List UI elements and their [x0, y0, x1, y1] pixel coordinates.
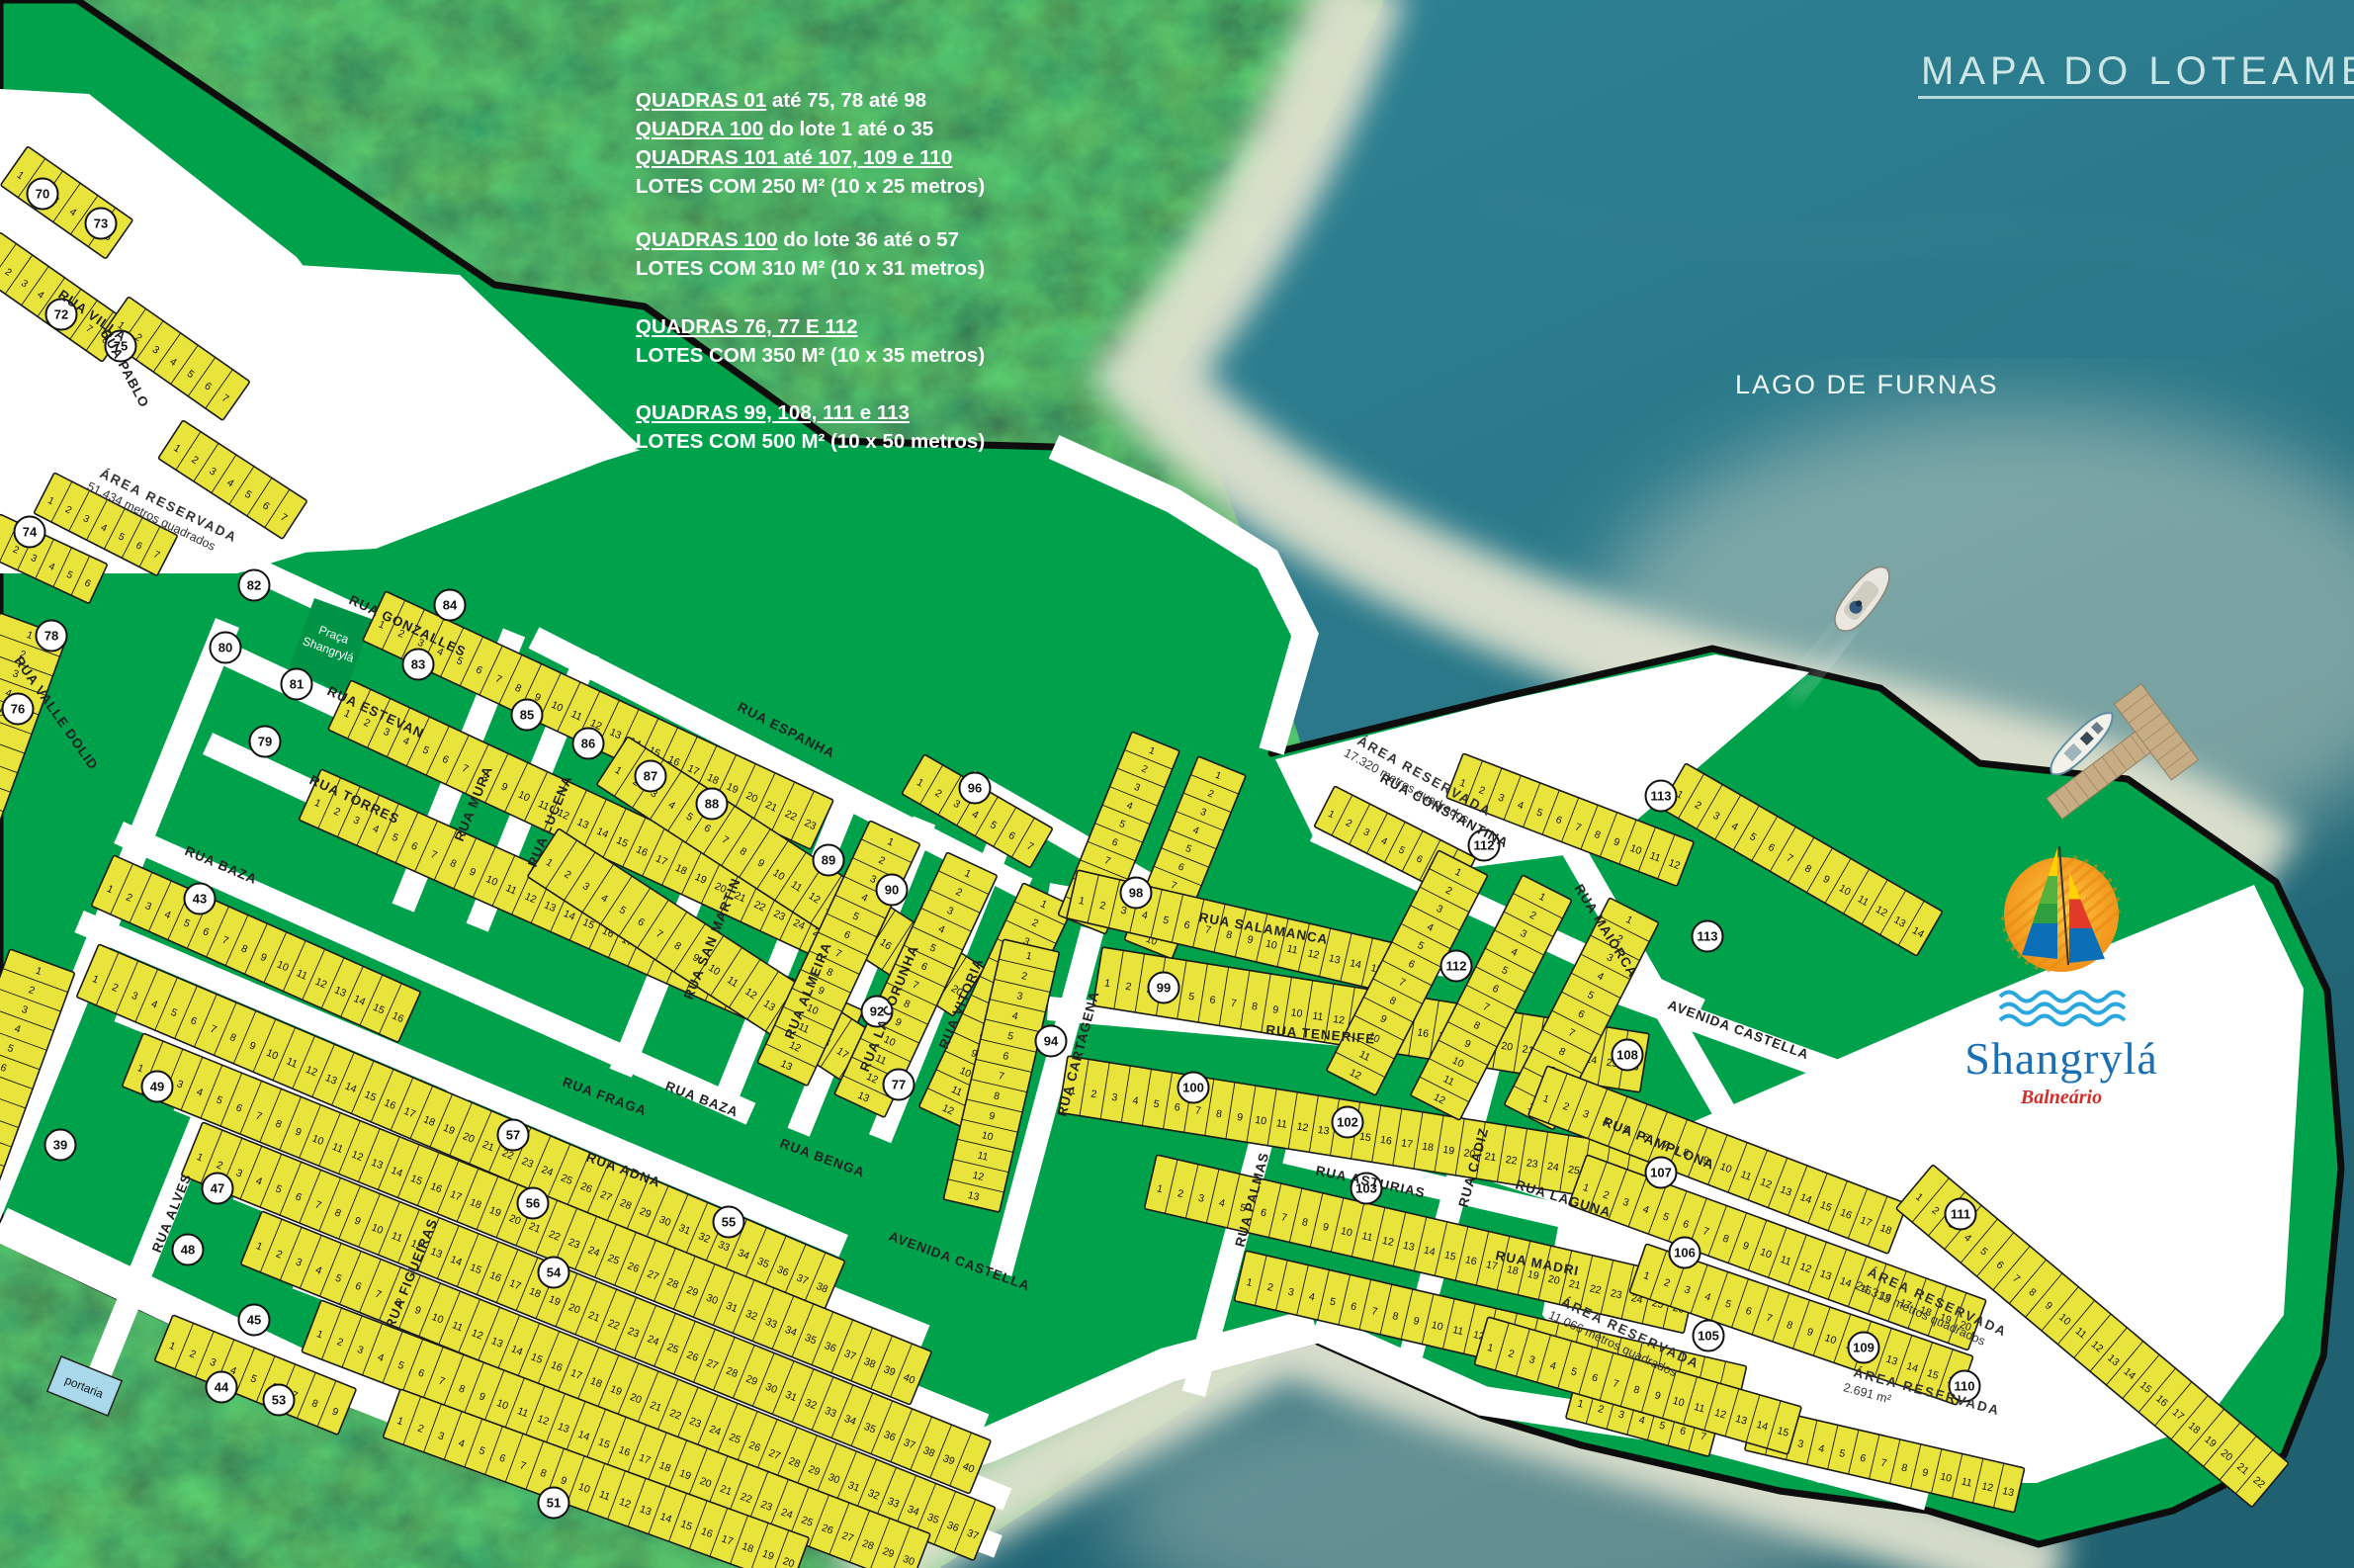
- quadra-number-circle: 89: [814, 845, 844, 876]
- quadra-number-circle: 109: [1849, 1333, 1879, 1363]
- quadra-number-circle: 113: [1646, 781, 1677, 812]
- legend-line: LOTES COM 310 M² (10 x 31 metros): [636, 257, 985, 280]
- quadra-number-circle: 113: [1693, 921, 1723, 952]
- quadra-number-circle: 57: [498, 1120, 529, 1151]
- lot-number: 10: [1290, 1006, 1304, 1020]
- quadra-number-circle: 53: [264, 1385, 295, 1416]
- lot-number: 22: [1505, 1154, 1519, 1168]
- svg-text:107: 107: [1650, 1166, 1672, 1180]
- svg-text:48: 48: [181, 1243, 195, 1258]
- svg-text:51: 51: [547, 1496, 561, 1511]
- quadra-number-circle: 96: [960, 773, 991, 804]
- quadra-number-circle: 86: [573, 729, 604, 759]
- quadra-number-circle: 43: [185, 884, 216, 915]
- quadra-number-circle: 90: [877, 875, 908, 906]
- svg-text:99: 99: [1157, 981, 1171, 996]
- svg-text:44: 44: [215, 1380, 229, 1395]
- legend-underlined: QUADRAS 101 até 107, 109 e 110: [636, 146, 952, 169]
- svg-text:57: 57: [506, 1128, 520, 1143]
- legend-line: LOTES COM 250 M² (10 x 25 metros): [636, 175, 985, 198]
- svg-text:80: 80: [218, 641, 232, 655]
- svg-text:108: 108: [1616, 1048, 1638, 1063]
- loteamento-map: Praça Shangrylá 123456789101112131415161…: [0, 0, 2354, 1568]
- svg-text:43: 43: [193, 892, 207, 907]
- lot-number: 19: [1442, 1144, 1456, 1158]
- lot-number: 15: [1358, 1131, 1372, 1145]
- quadra-number-circle: 73: [86, 209, 117, 239]
- svg-text:79: 79: [258, 735, 272, 749]
- quadra-number-circle: 80: [211, 633, 241, 663]
- title-underline: [1918, 96, 2354, 99]
- svg-text:82: 82: [247, 578, 261, 593]
- legend-line: LOTES COM 350 M² (10 x 35 metros): [636, 344, 985, 367]
- legend-line: QUADRA 100 do lote 1 até o 35: [636, 118, 933, 140]
- quadra-number-circle: 81: [282, 669, 312, 700]
- svg-text:81: 81: [290, 677, 304, 692]
- lot-number: 20: [1501, 1040, 1515, 1054]
- svg-text:77: 77: [892, 1078, 906, 1092]
- legend-line: QUADRAS 76, 77 E 112: [636, 315, 857, 338]
- legend-rest: LOTES COM 500 M² (10 x 50 metros): [636, 430, 985, 453]
- quadra-number-circle: 77: [884, 1070, 915, 1100]
- svg-text:54: 54: [547, 1265, 562, 1280]
- svg-text:102: 102: [1337, 1115, 1358, 1130]
- legend-line: QUADRAS 99, 108, 111 e 113: [636, 401, 910, 424]
- lot-number: 16: [1416, 1026, 1430, 1040]
- svg-text:105: 105: [1698, 1329, 1719, 1344]
- legend-underlined: QUADRAS 99, 108, 111 e 113: [636, 401, 910, 424]
- svg-text:84: 84: [443, 598, 458, 613]
- quadra-number-circle: 112: [1441, 951, 1472, 982]
- quadra-number-circle: 84: [435, 590, 466, 621]
- svg-text:89: 89: [822, 853, 835, 868]
- svg-text:87: 87: [644, 769, 657, 784]
- quadra-number-circle: 78: [37, 621, 67, 652]
- map-stage: Praça Shangrylá 123456789101112131415161…: [0, 0, 2354, 1568]
- lot-number: 16: [1379, 1134, 1393, 1148]
- quadra-number-circle: 79: [250, 727, 281, 757]
- quadra-number-circle: 39: [45, 1130, 76, 1161]
- quadra-number-circle: 54: [539, 1258, 569, 1288]
- quadra-number-circle: 102: [1333, 1107, 1363, 1138]
- quadra-number-circle: 106: [1670, 1238, 1700, 1268]
- svg-text:76: 76: [11, 702, 25, 717]
- svg-text:96: 96: [968, 781, 982, 796]
- legend-line: QUADRAS 01 até 75, 78 até 98: [636, 89, 926, 112]
- lot-number: 13: [1317, 1124, 1331, 1138]
- quadra-number-circle: 111: [1946, 1199, 1976, 1230]
- svg-text:83: 83: [411, 657, 425, 672]
- quadra-number-circle: 76: [3, 694, 34, 725]
- lot-number: 12: [1332, 1013, 1346, 1027]
- svg-text:111: 111: [1951, 1207, 1970, 1222]
- svg-text:100: 100: [1182, 1081, 1204, 1095]
- lot-number: 11: [1275, 1117, 1288, 1131]
- svg-text:106: 106: [1674, 1246, 1696, 1261]
- quadra-number-circle: 82: [239, 570, 270, 601]
- quadra-number-circle: 83: [403, 650, 434, 680]
- svg-text:56: 56: [526, 1196, 540, 1211]
- svg-text:53: 53: [272, 1393, 286, 1408]
- legend-underlined: QUADRAS 76, 77 E 112: [636, 315, 857, 338]
- lake-label: LAGO DE FURNAS: [1735, 370, 1999, 399]
- quadra-number-circle: 100: [1178, 1073, 1209, 1103]
- quadra-number-circle: 88: [697, 789, 728, 820]
- svg-text:78: 78: [44, 629, 58, 644]
- lot-number: 17: [1400, 1137, 1414, 1151]
- quadra-number-circle: 49: [142, 1072, 173, 1102]
- quadra-number-circle: 70: [28, 179, 58, 210]
- page-title: MAPA DO LOTEAMENTO: [1921, 49, 2354, 93]
- svg-text:55: 55: [722, 1215, 736, 1230]
- legend-line: QUADRAS 100 do lote 36 até o 57: [636, 228, 959, 251]
- quadra-number-circle: 45: [239, 1305, 270, 1336]
- lot-number: 23: [1526, 1157, 1539, 1171]
- quadra-number-circle: 108: [1613, 1040, 1643, 1071]
- svg-text:74: 74: [23, 525, 38, 540]
- svg-text:72: 72: [54, 307, 68, 322]
- svg-text:45: 45: [247, 1313, 261, 1328]
- quadra-number-circle: 48: [173, 1235, 204, 1265]
- svg-text:113: 113: [1698, 929, 1718, 944]
- quadra-number-circle: 98: [1121, 878, 1152, 909]
- quadra-number-circle: 55: [714, 1207, 744, 1238]
- legend-rest: do lote 36 até o 57: [778, 228, 959, 251]
- quadra-number-circle: 74: [15, 517, 45, 548]
- logo-subtitle: Balneário: [2020, 1087, 2102, 1108]
- svg-text:109: 109: [1853, 1341, 1874, 1355]
- quadra-number-circle: 51: [539, 1488, 569, 1519]
- quadra-number-circle: 56: [518, 1188, 549, 1219]
- lot-number: 12: [1296, 1121, 1310, 1135]
- svg-text:98: 98: [1129, 886, 1143, 901]
- svg-text:73: 73: [94, 217, 108, 231]
- quadra-number-circle: 44: [207, 1372, 237, 1403]
- legend-rest: LOTES COM 350 M² (10 x 35 metros): [636, 344, 985, 367]
- quadra-number-circle: 107: [1646, 1158, 1677, 1188]
- legend-rest: LOTES COM 310 M² (10 x 31 metros): [636, 257, 985, 280]
- svg-text:47: 47: [211, 1181, 224, 1196]
- legend-underlined: QUADRAS 100: [636, 228, 778, 251]
- quadra-number-circle: 47: [203, 1174, 233, 1204]
- legend-line: QUADRAS 101 até 107, 109 e 110: [636, 146, 952, 169]
- legend-rest: do lote 1 até o 35: [763, 118, 933, 140]
- quadra-number-circle: 87: [636, 761, 666, 792]
- lot-number: 21: [1484, 1151, 1498, 1165]
- lot-number: 18: [1421, 1141, 1435, 1155]
- quadra-number-circle: 99: [1149, 973, 1179, 1003]
- legend-underlined: QUADRAS 01: [636, 89, 766, 112]
- quadra-number-circle: 94: [1036, 1026, 1067, 1057]
- svg-text:85: 85: [520, 708, 534, 723]
- legend-rest: até 75, 78 até 98: [766, 89, 926, 112]
- svg-text:112: 112: [1446, 959, 1467, 974]
- svg-text:94: 94: [1044, 1034, 1059, 1049]
- lot-number: 10: [1255, 1114, 1268, 1128]
- legend-rest: LOTES COM 250 M² (10 x 25 metros): [636, 175, 985, 198]
- svg-text:90: 90: [885, 883, 899, 898]
- svg-text:70: 70: [36, 187, 49, 202]
- legend-line: LOTES COM 500 M² (10 x 50 metros): [636, 430, 985, 453]
- logo-name: Shangrylá: [1964, 1033, 2158, 1084]
- lot-number: 24: [1546, 1161, 1560, 1175]
- svg-text:113: 113: [1651, 789, 1672, 804]
- legend-underlined: QUADRA 100: [636, 118, 763, 140]
- lot-number: 11: [1311, 1010, 1324, 1024]
- svg-text:39: 39: [53, 1138, 67, 1153]
- quadra-number-circle: 85: [512, 700, 543, 731]
- quadra-number-circle: 105: [1694, 1321, 1724, 1351]
- svg-text:49: 49: [150, 1080, 164, 1094]
- svg-text:86: 86: [581, 737, 595, 751]
- svg-text:88: 88: [705, 797, 719, 812]
